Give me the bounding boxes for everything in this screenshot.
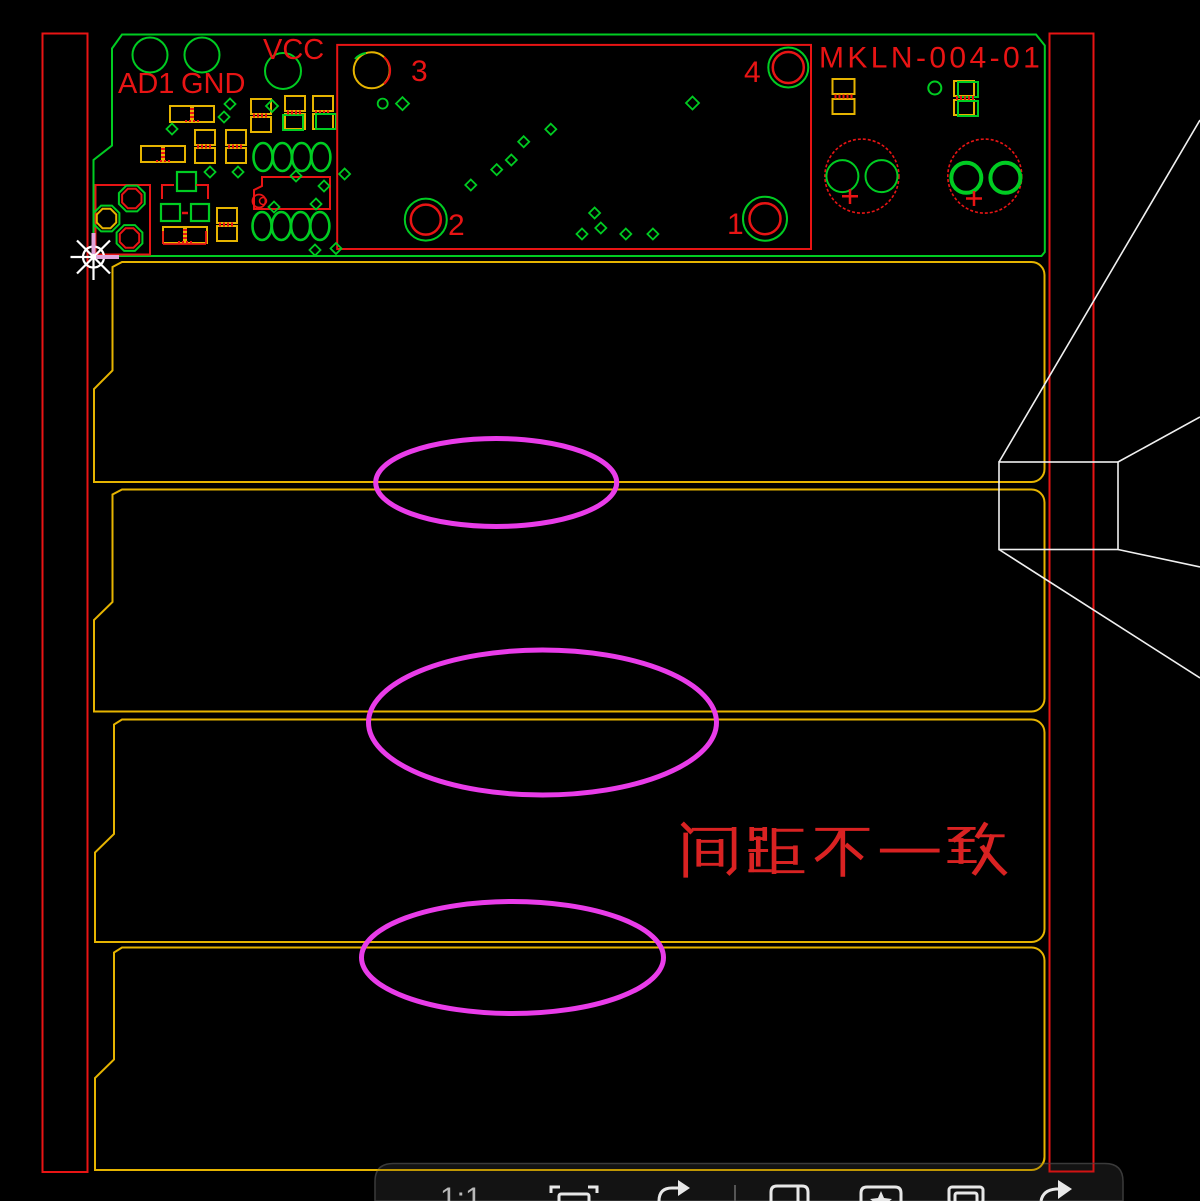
- svg-text:GND: GND: [181, 68, 245, 100]
- svg-text:4: 4: [744, 56, 761, 89]
- svg-text:AD1: AD1: [118, 68, 174, 100]
- svg-text:3: 3: [411, 55, 428, 88]
- svg-text:MKLN-004-01: MKLN-004-01: [819, 42, 1043, 75]
- svg-text:2: 2: [448, 209, 465, 242]
- svg-text:VCC: VCC: [263, 34, 324, 66]
- svg-text:1: 1: [727, 208, 744, 241]
- svg-text:1:1: 1:1: [440, 1182, 482, 1201]
